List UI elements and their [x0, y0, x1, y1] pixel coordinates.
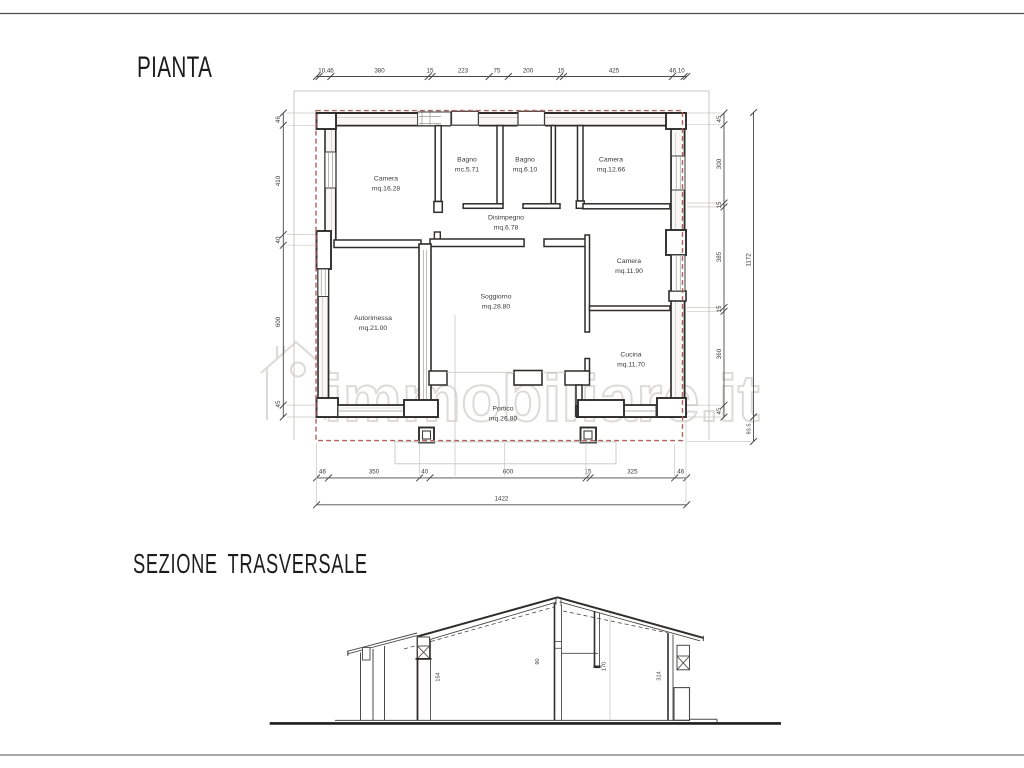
svg-text:mq.16.28: mq.16.28 [372, 186, 401, 193]
svg-text:170: 170 [602, 662, 608, 671]
svg-text:Camera: Camera [374, 176, 398, 183]
svg-text:300: 300 [716, 158, 723, 169]
svg-text:325: 325 [627, 469, 638, 476]
svg-text:Bagno: Bagno [457, 157, 477, 164]
svg-text:mq.11.90: mq.11.90 [615, 268, 643, 275]
svg-text:46: 46 [275, 116, 282, 123]
svg-text:223: 223 [458, 68, 469, 75]
svg-text:Cucina: Cucina [620, 352, 641, 359]
svg-text:15: 15 [716, 305, 723, 312]
svg-text:45: 45 [716, 115, 723, 122]
svg-text:mc.5.71: mc.5.71 [455, 167, 479, 174]
svg-text:15: 15 [716, 201, 723, 208]
svg-text:45: 45 [275, 400, 282, 407]
svg-text:15: 15 [427, 68, 434, 75]
svg-text:380: 380 [374, 68, 385, 75]
svg-text:40: 40 [421, 469, 428, 476]
svg-text:Bagno: Bagno [515, 157, 535, 164]
svg-text:Autorimessa: Autorimessa [354, 315, 392, 322]
svg-text:15: 15 [558, 68, 565, 75]
svg-text:425: 425 [609, 68, 620, 75]
svg-text:45: 45 [716, 407, 723, 414]
svg-text:Disimpegno: Disimpegno [488, 215, 524, 222]
svg-text:75: 75 [494, 68, 501, 75]
svg-text:Portico: Portico [492, 406, 513, 413]
svg-text:mq.21.00: mq.21.00 [359, 325, 388, 332]
svg-text:600: 600 [275, 316, 282, 327]
svg-text:410: 410 [275, 175, 282, 186]
svg-text:SEZIONE TRASVERSALE: SEZIONE TRASVERSALE [133, 549, 368, 580]
svg-text:93.5: 93.5 [746, 424, 752, 435]
svg-text:mq.26.80: mq.26.80 [489, 416, 518, 423]
svg-text:Camera: Camera [599, 157, 623, 164]
svg-text:200: 200 [523, 68, 534, 75]
svg-text:154: 154 [436, 672, 442, 681]
svg-text:mq.6.78: mq.6.78 [494, 225, 519, 232]
svg-text:1172: 1172 [745, 253, 752, 267]
svg-text:360: 360 [716, 348, 723, 359]
svg-text:90: 90 [535, 658, 541, 664]
svg-text:385: 385 [716, 251, 723, 262]
svg-text:46: 46 [319, 469, 326, 476]
svg-text:46,10: 46,10 [669, 68, 685, 75]
svg-text:PIANTA: PIANTA [137, 51, 213, 84]
svg-text:46: 46 [677, 469, 684, 476]
svg-text:40: 40 [275, 236, 282, 243]
svg-text:Camera: Camera [617, 258, 641, 265]
svg-text:mq.28.80: mq.28.80 [482, 304, 511, 311]
svg-text:1422: 1422 [495, 496, 509, 503]
svg-text:mq.11.70: mq.11.70 [617, 362, 645, 369]
svg-text:10,46: 10,46 [318, 68, 334, 75]
svg-text:Soggiorno: Soggiorno [481, 294, 512, 301]
svg-text:mq.12.66: mq.12.66 [597, 167, 626, 174]
svg-text:mq.6.10: mq.6.10 [513, 167, 538, 174]
svg-text:314: 314 [657, 671, 663, 680]
svg-text:350: 350 [369, 469, 380, 476]
